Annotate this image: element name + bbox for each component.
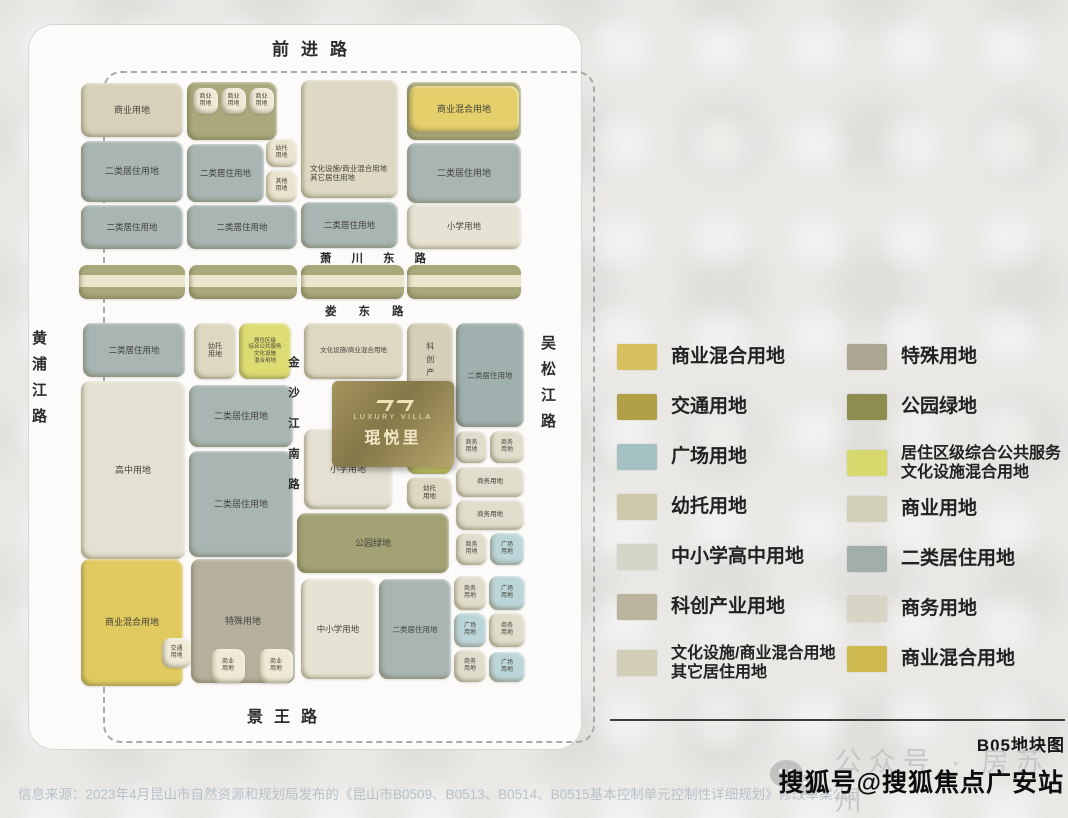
legend-item: 商务用地 xyxy=(847,596,1061,622)
legend-swatch xyxy=(847,496,887,522)
legend-label: 二类居住用地 xyxy=(901,548,1015,571)
map-block: 高中用地 xyxy=(81,381,185,559)
land-use-map-panel: 商业用地商业 用地商业 用地商业 用地商业混合用地文化设施/商业混合用地 其它居… xyxy=(28,24,582,750)
map-block: 二类居住用地 xyxy=(83,323,185,377)
map-block: 商务 用地 xyxy=(489,613,525,647)
map-block: 商务用地 xyxy=(456,500,524,530)
map-block: 文化设施/商业混合用地 其它居住用地 xyxy=(301,80,398,198)
legend-item: 特殊用地 xyxy=(847,344,1061,370)
luxury-villa-logo-icon xyxy=(375,400,411,411)
legend-item: 商业用地 xyxy=(847,496,1061,522)
legend-item: 文化设施/商业混合用地 其它居住用地 xyxy=(617,644,835,682)
map-block: 商业混合用地 xyxy=(409,86,519,132)
legend-label: 居住区级综合公共服务 文化设施混合用地 xyxy=(901,444,1061,482)
legend-item: 公园绿地 xyxy=(847,394,1061,420)
map-block: 二类居住用地 xyxy=(187,144,264,202)
map-block: 其他 用地 xyxy=(266,170,297,202)
map-block: 幼托 用地 xyxy=(266,139,297,167)
map-block: 二类居住用地 xyxy=(81,141,183,202)
legend-swatch xyxy=(847,394,887,420)
map-block: 商业 用地 xyxy=(221,88,246,114)
map-blocks: 商业用地商业 用地商业 用地商业 用地商业混合用地文化设施/商业混合用地 其它居… xyxy=(29,25,581,749)
green-strip-block xyxy=(301,265,404,299)
luxury-villa-logo-badge: LUXURY VILLA 琨悦里 xyxy=(332,381,454,467)
map-block: 二类居住用地 xyxy=(301,202,398,248)
legend-item: 广场用地 xyxy=(617,444,835,470)
road-label-jinshajiang-south: 金沙江南路 xyxy=(284,352,302,513)
legend-label: 幼托用地 xyxy=(671,496,747,519)
map-block: 商业 用地 xyxy=(211,649,245,683)
legend-label: 商业用地 xyxy=(901,498,977,521)
map-block: 商业 用地 xyxy=(193,88,218,114)
map-block: 广场 用地 xyxy=(489,576,525,610)
map-block: 交通 用地 xyxy=(162,638,191,668)
map-block: 二类居住用地 xyxy=(379,579,451,679)
legend-swatch xyxy=(847,646,887,672)
legend-label: 交通用地 xyxy=(671,396,747,419)
road-label-qianjin: 前进路 xyxy=(268,34,363,61)
legend-swatch xyxy=(617,344,657,370)
legend-column-right: 特殊用地公园绿地居住区级综合公共服务 文化设施混合用地商业用地二类居住用地商务用… xyxy=(847,344,1061,672)
legend-label: 商务用地 xyxy=(901,598,977,621)
legend-label: 特殊用地 xyxy=(901,346,977,369)
map-block: 文化设施/商业混合用地 xyxy=(304,323,403,379)
map-block: 二类居住用地 xyxy=(456,323,524,427)
road-label-xiaochuan-east: 萧川东路 xyxy=(316,249,450,267)
legend-swatch xyxy=(847,450,887,476)
legend-swatch xyxy=(847,344,887,370)
map-block: 二类居住用地 xyxy=(189,451,293,557)
legend-swatch xyxy=(617,444,657,470)
legend-label: 商业混合用地 xyxy=(901,648,1015,671)
legend-swatch xyxy=(847,546,887,572)
legend-item: 商业混合用地 xyxy=(617,344,835,370)
legend-item: 商业混合用地 xyxy=(847,646,1061,672)
map-block: 商业 用地 xyxy=(249,88,274,114)
map-block: 商务 用地 xyxy=(456,431,487,463)
map-block: 商业用地 xyxy=(81,83,183,137)
legend-swatch xyxy=(617,594,657,620)
legend-item: 科创产业用地 xyxy=(617,594,835,620)
map-block: 广场 用地 xyxy=(489,652,525,682)
legend-item: 居住区级综合公共服务 文化设施混合用地 xyxy=(847,444,1061,482)
legend-item: 二类居住用地 xyxy=(847,546,1061,572)
green-strip-block xyxy=(189,265,297,299)
legend-label: 商业混合用地 xyxy=(671,346,785,369)
map-block: 幼托 用地 xyxy=(194,323,236,379)
map-block: 商务 用地 xyxy=(456,533,487,565)
map-block: 商务 用地 xyxy=(454,650,486,682)
legend-swatch xyxy=(617,494,657,520)
legend-swatch xyxy=(847,596,887,622)
footer-divider xyxy=(610,719,1065,721)
legend-label: 公园绿地 xyxy=(901,396,977,419)
map-block: 二类居住用地 xyxy=(407,143,521,203)
map-block: 中小学用地 xyxy=(301,579,375,679)
map-block: 商业 用地 xyxy=(259,649,293,683)
road-label-wusongjiang: 吴松江路 xyxy=(536,331,559,443)
green-strip-block xyxy=(79,265,185,299)
map-block: 二类居住用地 xyxy=(81,205,183,249)
logo-brand-cn: 琨悦里 xyxy=(364,424,421,448)
road-label-jingwang: 景王路 xyxy=(243,702,332,728)
info-source-text: 信息来源：2023年4月昆山市自然资源和规划局发布的《昆山市B0509、B051… xyxy=(18,783,860,803)
map-block: 幼托 用地 xyxy=(407,477,452,509)
map-block: 商务用地 xyxy=(456,467,524,497)
map-block: 商务 用地 xyxy=(454,576,486,610)
logo-brand-en: LUXURY VILLA xyxy=(353,414,432,421)
legend-label: 广场用地 xyxy=(671,446,747,469)
legend-swatch xyxy=(617,394,657,420)
legend-item: 中小学高中用地 xyxy=(617,544,835,570)
road-label-huangpujiang: 黄浦江路 xyxy=(27,326,50,438)
road-label-loudong: 娄东路 xyxy=(321,302,430,320)
map-block: 广场 用地 xyxy=(454,613,486,647)
map-block: 广场 用地 xyxy=(490,533,524,565)
map-block: 小学用地 xyxy=(407,204,521,249)
map-block: 二类居住用地 xyxy=(189,385,293,447)
legend-label: 文化设施/商业混合用地 其它居住用地 xyxy=(671,644,835,682)
legend-swatch xyxy=(617,544,657,570)
legend-item: 幼托用地 xyxy=(617,494,835,520)
map-block: 商务 用地 xyxy=(490,431,524,463)
legend-item: 交通用地 xyxy=(617,394,835,420)
legend-label: 中小学高中用地 xyxy=(671,546,804,569)
map-block: 公园绿地 xyxy=(297,513,449,573)
legend-label: 科创产业用地 xyxy=(671,596,785,619)
green-strip-block xyxy=(407,265,521,299)
legend-column-left: 商业混合用地交通用地广场用地幼托用地中小学高中用地科创产业用地文化设施/商业混合… xyxy=(617,344,835,672)
legend-swatch xyxy=(617,650,657,676)
sohu-watermark: 搜狐号@搜狐焦点广安站 xyxy=(779,763,1064,799)
map-block: 二类居住用地 xyxy=(187,205,297,249)
